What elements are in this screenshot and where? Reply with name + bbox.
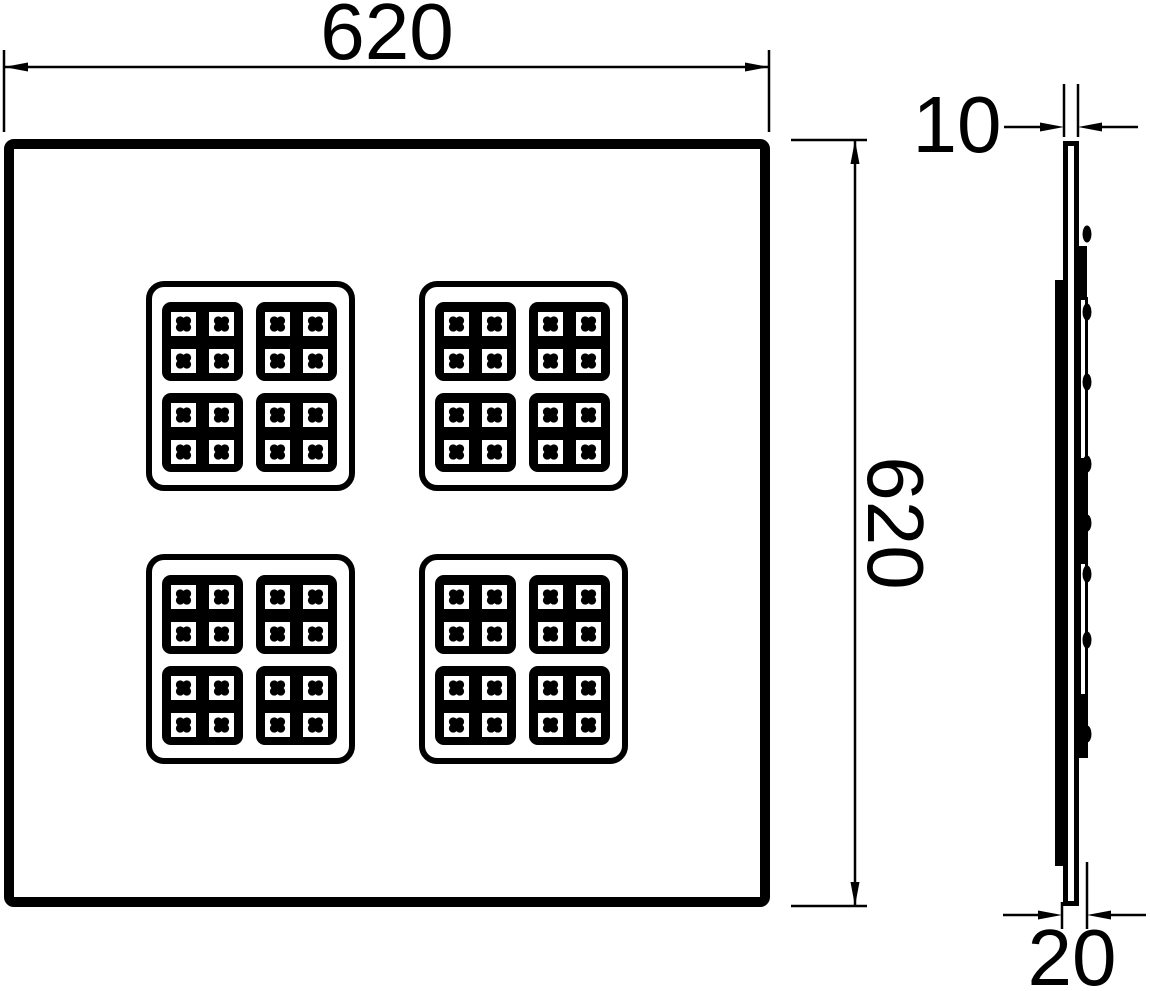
dimension-label-front-width: 620	[320, 0, 453, 76]
arrow-left-icon	[4, 63, 28, 72]
side-panel-plate	[1066, 144, 1077, 904]
side-rear-block-middle	[1078, 458, 1088, 564]
side-frame-flange	[1055, 280, 1064, 866]
led-cluster-top-right	[422, 284, 625, 488]
led-cluster-bottom-left	[149, 557, 352, 761]
dimension-label-front-height: 620	[851, 456, 940, 589]
side-view	[1055, 144, 1092, 904]
dimension-label-side-thickness: 10	[913, 80, 1002, 169]
side-rear-block-top	[1078, 246, 1087, 300]
arrow-left-icon	[1078, 123, 1102, 132]
arrow-right-icon	[1040, 123, 1064, 132]
led-cluster-top-left	[149, 284, 352, 488]
front-view	[9, 144, 765, 902]
led-cluster-bottom-right	[422, 557, 625, 761]
dimension-label-side-depth: 20	[1028, 913, 1117, 991]
dimension-front-width: 620	[4, 0, 769, 132]
arrow-right-icon	[745, 63, 769, 72]
side-rear-block-bottom	[1078, 694, 1088, 756]
arrow-down-icon	[851, 882, 860, 906]
dimension-front-height: 620	[791, 140, 940, 906]
panel-outline	[9, 144, 765, 902]
led-panel-dimension-drawing: 620 620 10 20	[0, 0, 1150, 991]
arrow-up-icon	[851, 140, 860, 164]
technical-drawing-canvas: 620 620 10 20	[0, 0, 1150, 991]
dimension-side-thickness: 10	[913, 80, 1138, 169]
